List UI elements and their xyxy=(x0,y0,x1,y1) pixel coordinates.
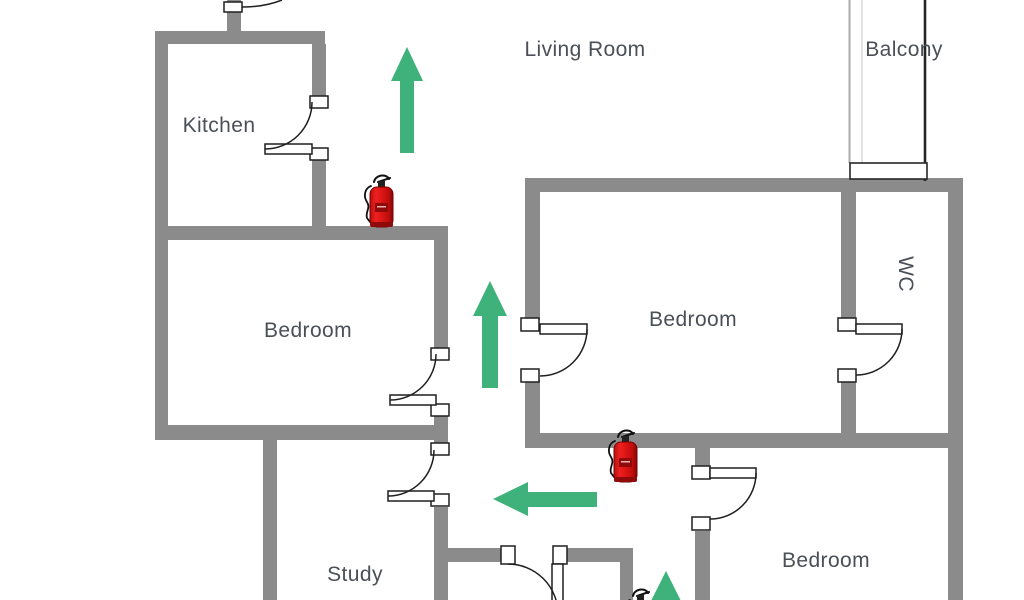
door-jamb xyxy=(838,369,856,382)
door-jamb xyxy=(838,318,856,331)
door-corridor xyxy=(388,443,449,506)
wall-segment xyxy=(620,562,633,600)
room-label-living-room: Living Room xyxy=(524,38,645,62)
room-label-bedroom-right: Bedroom xyxy=(649,308,737,332)
door-swing-arc xyxy=(242,0,282,7)
wall-segment xyxy=(525,192,540,320)
door-hallway xyxy=(501,546,567,600)
door-jamb xyxy=(431,404,449,416)
evacuation-arrow-up-icon xyxy=(473,281,507,388)
door-jamb xyxy=(431,348,449,360)
wall-segment xyxy=(434,507,448,600)
door-swing-arc xyxy=(540,329,587,376)
door-kitchen xyxy=(265,96,328,160)
room-label-kitchen: Kitchen xyxy=(183,114,256,138)
door-jamb xyxy=(521,318,539,331)
door-jamb xyxy=(692,466,710,479)
door-swing-arc xyxy=(390,354,436,400)
wall-segment xyxy=(566,548,633,562)
walls xyxy=(155,0,963,600)
door-leaf xyxy=(710,468,756,478)
wall-segment xyxy=(155,425,448,440)
door-jamb xyxy=(553,546,567,564)
door-entrance xyxy=(224,0,282,12)
wall-segment xyxy=(263,440,277,600)
wall-segment xyxy=(312,44,326,100)
wall-segment xyxy=(434,240,448,350)
door-leaf xyxy=(224,2,242,12)
room-label-bedroom-bottom-right: Bedroom xyxy=(782,549,870,573)
door-jamb xyxy=(521,369,539,382)
wall-segment xyxy=(525,178,963,192)
room-label-study: Study xyxy=(327,563,383,587)
wall-segment xyxy=(948,178,963,600)
door-leaf xyxy=(856,324,902,334)
evacuation-arrow-left-icon xyxy=(493,482,597,516)
door-bedroom-bottom-right xyxy=(692,466,756,530)
door-swing-arc xyxy=(856,329,902,375)
wall-segment xyxy=(525,433,963,448)
room-label-bedroom-left: Bedroom xyxy=(264,319,352,343)
wall-segment xyxy=(448,548,504,562)
wall-segment xyxy=(525,379,540,433)
wall-segment xyxy=(155,226,448,240)
fire-extinguisher-icon xyxy=(365,175,393,227)
wall-segment xyxy=(841,379,856,433)
balcony-structure xyxy=(850,0,928,181)
room-label-wc: WC xyxy=(893,256,917,292)
door-swing-arc xyxy=(508,564,558,600)
balcony-window xyxy=(850,163,927,179)
wall-segment xyxy=(841,192,856,320)
floor-plan-drawing xyxy=(0,0,1024,600)
room-label-balcony: Balcony xyxy=(865,38,943,62)
door-swing-arc xyxy=(265,102,312,149)
wall-segment xyxy=(695,531,710,600)
door-jamb xyxy=(501,546,515,564)
door-swing-arc xyxy=(710,473,756,519)
wall-segment xyxy=(312,156,326,228)
door-bedroom-left xyxy=(390,348,449,416)
door-leaf xyxy=(540,324,587,334)
door-swing-arc xyxy=(388,450,434,496)
door-bedroom-right xyxy=(521,318,587,382)
door-wc xyxy=(838,318,902,382)
evacuation-arrow-up-icon xyxy=(391,47,423,153)
floor-plan: Kitchen Living Room Balcony Bedroom Bedr… xyxy=(0,0,1024,600)
evacuation-arrow-up-icon xyxy=(649,571,683,600)
door-jamb xyxy=(692,517,710,530)
